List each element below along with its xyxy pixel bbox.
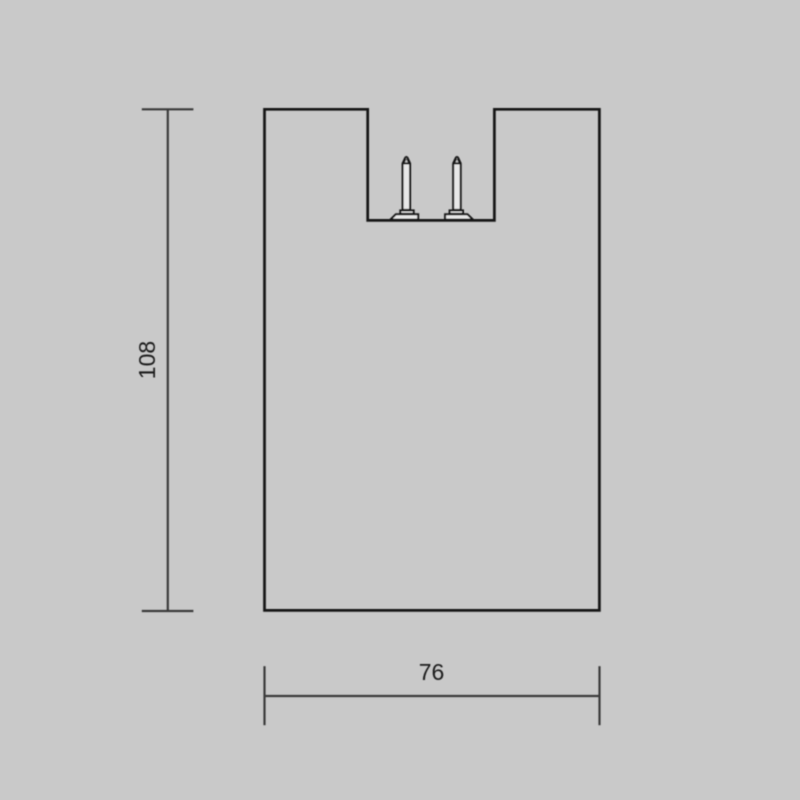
svg-text:108: 108	[134, 341, 160, 379]
svg-text:76: 76	[419, 659, 445, 685]
